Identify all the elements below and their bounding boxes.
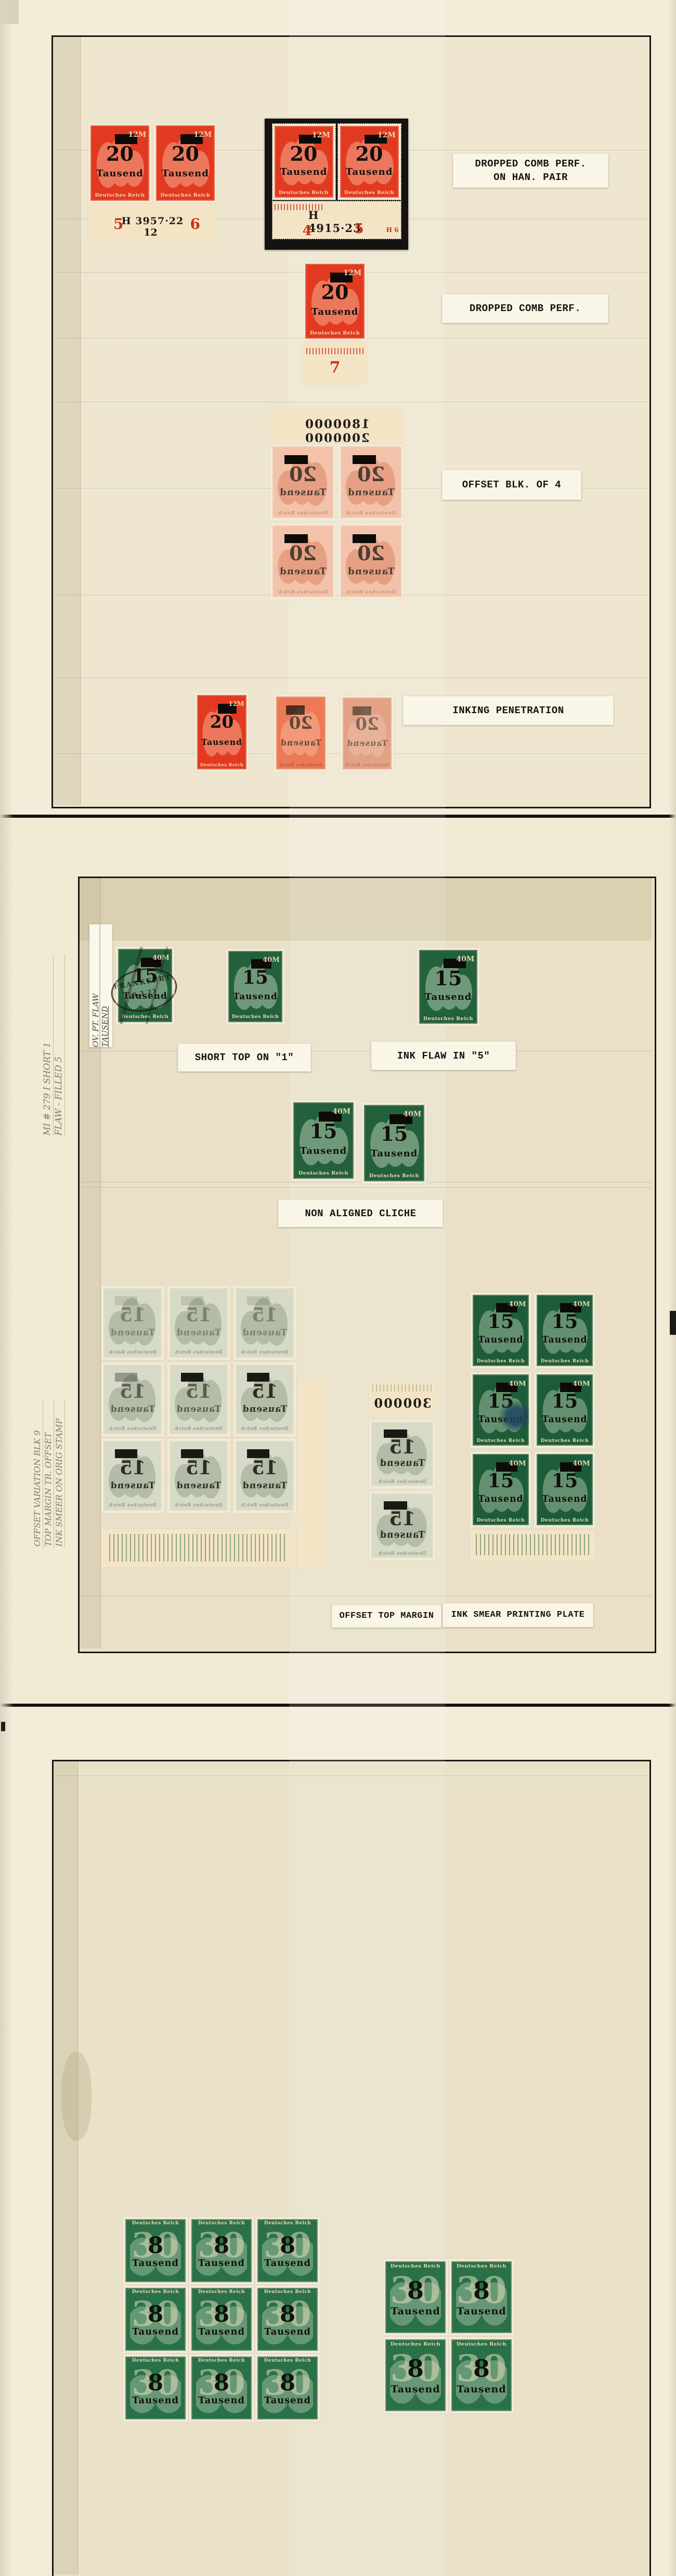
country-name: Deutsches Reich [473,1518,529,1523]
base-value: 40M [573,1300,590,1308]
block-of-9-8-tausend: Deutsches Reich 30 8 Tausend Deutsches R… [123,2217,320,2422]
surcharge-value: 15 [473,1472,529,1490]
surcharge-value: 15 [537,1472,593,1490]
note-line: OV. PT. FLAW [91,924,100,1047]
surcharge-value: 15 [170,1459,228,1477]
stamp-8-tausend: Deutsches Reich 30 8 Tausend [255,2286,320,2353]
surcharge-unit: Tausend [451,2307,512,2316]
sheet-position-right: 6 [190,215,200,233]
surcharge-unit: Tausend [170,1329,228,1337]
base-value: 40M [573,1459,590,1467]
stamp-print: Deutsches Reich 30 8 Tausend [125,2219,186,2282]
base-value: 40M [403,1110,421,1118]
stamp-print: Deutsches Reich 30 8 Tausend [125,2356,186,2419]
stamp-8-tausend: Deutsches Reich 30 8 Tausend [383,2337,448,2413]
stamp-15-tausend-offset: 15 Tausend Deutsches Reich [233,1286,296,1360]
surcharge-unit: Tausend [385,2385,446,2394]
surcharge-unit: Tausend [272,567,333,576]
stamp-album-scan: 12M 20 Tausend Deutsches Reich 12M 20 Ta… [0,0,676,2576]
stamp-8-tausend: Deutsches Reich 30 8 Tausend [123,2286,188,2353]
surcharge-unit: Tausend [371,1459,433,1468]
control-number: 12 [144,227,157,238]
country-name: Deutsches Reich [170,1503,228,1508]
mounted-pair-sheet-margin: H 4915·23 4 5 H 6 [272,201,401,239]
country-name: Deutsches Reich [343,763,392,767]
stamp-8-tausend: Deutsches Reich 30 8 Tausend [449,2337,514,2413]
surcharge-value: 20 [340,144,399,164]
stamp-print: 40M 15 Tausend Deutsches Reich [364,1105,424,1181]
surcharge-unit: Tausend [537,1336,593,1345]
stamp-15-tausend-offset: 15 Tausend Deutsches Reich [101,1439,164,1513]
stamp-print: 40M 15 Tausend Deutsches Reich [473,1454,529,1525]
surcharge-unit: Tausend [385,2307,446,2316]
surcharge-unit: Tausend [537,1415,593,1424]
surcharge-value: 20 [341,465,401,484]
surcharge-value: 8 [125,2234,186,2257]
label-text: NON ALIGNED CLICHE [305,1207,416,1220]
stamp-15-tausend: 40M 15 Tausend Deutsches Reich [471,1293,531,1368]
surcharge-unit: Tausend [236,1482,294,1490]
note-line: FLAW - FILLED 5 [54,955,65,1137]
stamp-15-tausend: 40M 15 Tausend Deutsches Reich [291,1100,356,1181]
surcharge-unit: Tausend [90,169,149,178]
stamp-print: 12M 20 Tausend Deutsches Reich [305,264,365,339]
label-inking-penetration: INKING PENETRATION [403,696,614,725]
stamp-20-tausend: 12M 20 Tausend Deutsches Reich [154,123,217,203]
surcharge-unit: Tausend [340,168,399,177]
surcharge-unit: Tausend [170,1405,228,1414]
label-text: ON HAN. PAIR [493,171,568,184]
edge-mark [1,1722,5,1731]
stamp-15-tausend-ink-flaw: 40M 15 Tausend Deutsches Reich [417,948,479,1026]
surcharge-unit: Tausend [305,307,365,317]
stamp-print: 40M 15 Tausend Deutsches Reich [537,1374,593,1446]
stamp-print: Deutsches Reich 30 8 Tausend [385,2339,446,2411]
block6-bottom-margin [471,1530,595,1560]
stamp-print: 15 Tausend Deutsches Reich [103,1364,162,1434]
surcharge-unit: Tausend [125,2396,186,2405]
country-name: Deutsches Reich [305,331,365,336]
label-non-aligned-cliche: NON ALIGNED CLICHE [278,1200,443,1227]
country-name: Deutsches Reich [371,1479,433,1484]
note-line: TOP MARGIN TR. OFFSET [43,1399,54,1548]
stamp-print: 40M 15 Tausend Deutsches Reich [473,1295,529,1366]
stamp-print: 15 Tausend Deutsches Reich [371,1493,433,1558]
country-name: Deutsches Reich [341,590,401,595]
base-value: 40M [263,956,280,964]
base-value: 12M [193,131,212,139]
han-number: H 3957·22 [122,215,184,227]
stamp-20-tausend: 12M 20 Tausend Deutsches Reich [272,124,335,200]
label-short-top: SHORT TOP ON "1" [178,1044,311,1072]
sheet-position-right: 5 [355,221,364,237]
offset-block-of-9: 15 Tausend Deutsches Reich 15 Tausend De… [101,1286,296,1513]
surcharge-value: 8 [385,2356,446,2380]
stamp-15-tausend: 40M 15 Tausend Deutsches Reich [535,1372,595,1448]
stamp-15-tausend-offset: 15 Tausend Deutsches Reich [167,1362,230,1436]
han-pair-sheet-margin: 5 H 3957·22 6 12 [88,204,217,241]
surcharge-unit: Tausend [197,738,246,746]
country-name: Deutsches Reich [103,1503,162,1508]
surcharge-value: 15 [537,1392,593,1411]
surcharge-unit: Tausend [103,1329,162,1337]
surcharge-unit: Tausend [276,739,326,746]
country-name: Deutsches Reich [236,1350,294,1355]
surcharge-unit: Tausend [191,2327,252,2337]
stamp-8-tausend: Deutsches Reich 30 8 Tausend [255,2217,320,2284]
country-name: Deutsches Reich [236,1427,294,1432]
stamp-8-tausend: Deutsches Reich 30 8 Tausend [123,2217,188,2284]
surcharge-value: 15 [236,1306,294,1324]
surcharge-value: 20 [272,465,333,484]
sheet-counting-number-mirrored: 300000 [369,1396,435,1411]
corner-code: H 6 [386,226,399,234]
base-value: 12M [378,131,396,139]
stamp-15-tausend: 40M 15 Tausend Deutsches Reich [362,1103,426,1183]
stamp-print: 15 Tausend Deutsches Reich [170,1441,228,1511]
surcharge-unit: Tausend [257,2259,318,2268]
base-value: 12M [343,269,361,277]
stamp-print: 15 Tausend Deutsches Reich [236,1441,294,1511]
surcharge-value: 8 [385,2278,446,2302]
stamp-print: 15 Tausend Deutsches Reich [236,1364,294,1434]
stamp-8-tausend: Deutsches Reich 30 8 Tausend [123,2354,188,2422]
country-name: Deutsches Reich [340,190,399,196]
stamp-8-tausend: Deutsches Reich 30 8 Tausend [189,2286,254,2353]
stamp-20-tausend-offset: 20 Tausend Deutsches Reich [270,444,335,520]
surcharge-value: 8 [257,2303,318,2325]
surcharge-unit: Tausend [228,992,282,1001]
stamp-print: 20 Tausend Deutsches Reich [341,525,401,597]
stamp-print: 40M 15 Tausend Deutsches Reich [228,951,282,1022]
country-name: Deutsches Reich [90,193,149,198]
base-value: 40M [509,1380,526,1388]
stamp-print: 20 Tausend Deutsches Reich [272,446,333,518]
stamp-8-tausend: Deutsches Reich 30 8 Tausend [449,2259,514,2335]
label-offset-block: OFFSET BLK. OF 4 [442,470,581,500]
surcharge-value: 20 [343,716,392,733]
surcharge-value: 15 [473,1312,529,1331]
country-name: Deutsches Reich [341,511,401,516]
surcharge-unit: Tausend [170,1482,228,1490]
country-name: Deutsches Reich [103,1350,162,1355]
country-name: Deutsches Reich [228,1015,282,1020]
surcharge-unit: Tausend [343,739,392,747]
stamp-15-tausend-offset: 15 Tausend Deutsches Reich [233,1439,296,1513]
country-name: Deutsches Reich [419,1016,477,1022]
stamp-print: 40M 15 Tausend Deutsches Reich [537,1295,593,1366]
label-dropped-comb-perf-pair: DROPPED COMB PERF. ON HAN. PAIR [453,153,608,188]
sheet-position: 7 [330,358,341,377]
country-name: Deutsches Reich [537,1438,593,1443]
surcharge-unit: Tausend [103,1405,162,1414]
country-name: Deutsches Reich [170,1427,228,1432]
country-name: Deutsches Reich [170,1350,228,1355]
surcharge-value: 8 [191,2303,252,2325]
note-line: OFFSET VARIATION BLK 9 [32,1399,43,1548]
surcharge-unit: Tausend [257,2327,318,2337]
stamp-print: 40M 15 Tausend Deutsches Reich [473,1374,529,1446]
page1-hinge-strip [53,37,81,805]
stamp-20-tausend-offset: 20 Tausend Deutsches Reich [270,523,335,599]
offset-block-top-margin: 1800000 2000000 [270,407,404,442]
base-value: 12M [228,700,244,707]
base-value: 40M [332,1107,350,1116]
stamp-15-tausend-offset: 15 Tausend Deutsches Reich [233,1362,296,1436]
country-name: Deutsches Reich [156,193,215,198]
surcharge-unit: Tausend [341,567,401,576]
han-pair-20-tausend: 12M 20 Tausend Deutsches Reich 12M 20 Ta… [88,123,217,203]
label-text: INK FLAW IN "5" [397,1049,490,1063]
country-name: Deutsches Reich [236,1503,294,1508]
surcharge-unit: Tausend [341,488,401,497]
base-value: 40M [456,955,474,963]
surcharge-value: 15 [473,1392,529,1411]
surcharge-unit: Tausend [257,2396,318,2405]
country-name: Deutsches Reich [451,2264,512,2269]
base-value: 12M [312,131,330,139]
stamp-15-tausend-used: 40M 15 Tausend Deutsches Reich FRANKFURT… [116,947,174,1024]
label-text: DROPPED COMB PERF. [470,302,581,315]
binder-edge-left [0,0,14,2576]
surcharge-value: 20 [341,544,401,563]
stamp-8-tausend: Deutsches Reich 30 8 Tausend [255,2354,320,2422]
surcharge-unit: Tausend [419,993,477,1002]
note-line: MI # 279 I SHORT 1 [42,955,54,1137]
country-name: Deutsches Reich [385,2342,446,2347]
country-name: Deutsches Reich [385,2264,446,2269]
stamp-15-tausend: 40M 15 Tausend Deutsches Reich [471,1452,531,1527]
perforation-comb-marks [306,348,363,354]
surcharge-unit: Tausend [293,1147,354,1156]
page-edge-right [669,0,676,2576]
surcharge-value: 8 [451,2278,512,2302]
scanner-light-band [289,0,445,2576]
surcharge-unit: Tausend [451,2385,512,2394]
surcharge-unit: Tausend [103,1482,162,1490]
pencil-note-1: MI # 279 I SHORT 1 FLAW - FILLED 5 [42,955,65,1137]
stamp-print: Deutsches Reich 30 8 Tausend [191,2288,252,2351]
stamp-print: Deutsches Reich 30 8 Tausend [257,2356,318,2419]
stamp-print: 12M 20 Tausend Deutsches Reich [156,125,215,201]
country-name: Deutsches Reich [537,1359,593,1363]
label-text: SHORT TOP ON "1" [195,1051,294,1064]
country-name: Deutsches Reich [371,1551,433,1556]
stamp-15-tausend: 40M 15 Tausend Deutsches Reich [226,949,284,1024]
country-name: Deutsches Reich [473,1438,529,1443]
surcharge-value: 15 [103,1306,162,1324]
surcharge-value: 15 [236,1459,294,1477]
stamp-15-tausend-offset: 15 Tausend Deutsches Reich [369,1420,435,1488]
stamp-20-tausend: 12M 20 Tausend Deutsches Reich [338,124,401,200]
surcharge-unit: Tausend [473,1495,529,1504]
stamp-print: 40M 15 Tausend Deutsches Reich [537,1454,593,1525]
stamp-20-tausend: 12M 20 Tausend Deutsches Reich [88,123,151,203]
stamp-20-tausend-offset: 20 Tausend Deutsches Reich [339,444,404,520]
surcharge-value: 20 [275,144,333,164]
surcharge-unit: Tausend [371,1531,433,1540]
surcharge-value: 15 [364,1124,424,1144]
surcharge-value: 8 [191,2372,252,2394]
note-line: TAUSEND [100,924,110,1047]
page3-stain [61,2052,92,2141]
surcharge-unit: Tausend [473,1336,529,1345]
sheet-counting-numbers-mirrored: 1800000 2000000 [270,417,404,445]
stamp-20-tausend: 12M 20 Tausend Deutsches Reich [195,693,249,771]
block-of-4-8-tausend: Deutsches Reich 30 8 Tausend Deutsches R… [383,2259,514,2413]
stamp-print: 12M 20 Tausend Deutsches Reich [340,126,399,198]
label-text: OFFSET TOP MARGIN [340,1611,434,1622]
sheet-position-left: 4 [303,223,312,239]
block-of-6-ink-smear: 40M 15 Tausend Deutsches Reich 40M 15 Ta… [471,1293,595,1527]
stamp-20-tausend-offset: 20 Tausend Deutsches Reich [339,523,404,599]
block9-bottom-margin [101,1529,296,1567]
surcharge-value: 15 [170,1306,228,1324]
label-text: INKING PENETRATION [452,704,564,717]
country-name: Deutsches Reich [473,1359,529,1363]
stamp-print: 20 Tausend Deutsches Reich [343,698,392,769]
label-offset-top-margin: OFFSET TOP MARGIN [332,1605,441,1628]
stamp-print: 12M 20 Tausend Deutsches Reich [275,126,333,198]
label-text: DROPPED COMB PERF. [475,157,586,171]
stamp-print: Deutsches Reich 30 8 Tausend [191,2356,252,2419]
stamp-print: 15 Tausend Deutsches Reich [170,1364,228,1434]
country-name: Deutsches Reich [537,1518,593,1523]
label-ink-smear-plate: INK SMEAR PRINTING PLATE [443,1603,593,1627]
edge-mark [670,1311,676,1335]
stamp-15-tausend-offset: 15 Tausend Deutsches Reich [167,1286,230,1360]
pencil-note-2: OFFSET VARIATION BLK 9 TOP MARGIN TR. OF… [32,1399,65,1548]
stamp-8-tausend: Deutsches Reich 30 8 Tausend [383,2259,448,2335]
country-name: Deutsches Reich [272,590,333,595]
offset-strip-pair: 15 Tausend Deutsches Reich 15 Tausend De… [369,1420,435,1560]
offset-block-of-4: 20 Tausend Deutsches Reich 20 Tausend De… [270,444,404,599]
surcharge-unit: Tausend [473,1415,529,1424]
country-name: Deutsches Reich [272,511,333,516]
surcharge-value: 8 [451,2356,512,2380]
surcharge-unit: Tausend [191,2259,252,2268]
label-text: INK SMEAR PRINTING PLATE [451,1609,585,1621]
stamp-print: Deutsches Reich 30 8 Tausend [257,2288,318,2351]
surcharge-value: 20 [305,282,365,302]
label-ink-flaw: INK FLAW IN "5" [371,1041,516,1070]
stamp-print: 20 Tausend Deutsches Reich [341,446,401,518]
stamp-print: 15 Tausend Deutsches Reich [103,1288,162,1358]
stamp-print: 15 Tausend Deutsches Reich [103,1441,162,1511]
stamp-print: 20 Tausend Deutsches Reich [276,697,326,769]
surcharge-value: 15 [537,1312,593,1331]
surcharge-unit: Tausend [364,1149,424,1158]
non-aligned-cliche-pair: 40M 15 Tausend Deutsches Reich 40M 15 Ta… [291,1100,426,1183]
stamp-print: Deutsches Reich 30 8 Tausend [385,2261,446,2333]
surcharge-value: 15 [103,1382,162,1401]
base-value: 40M [509,1459,526,1467]
stamp-15-tausend-offset: 15 Tausend Deutsches Reich [369,1491,435,1560]
single-sheet-margin: 7 [303,342,367,384]
surcharge-value: 15 [293,1122,354,1141]
stamp-20-tausend-ink-penetration: 20 Tausend Deutsches Reich [274,694,328,771]
surcharge-unit: Tausend [156,169,215,178]
stamp-20-tausend: 12M 20 Tausend Deutsches Reich [303,262,367,341]
label-text: OFFSET BLK. OF 4 [462,478,561,492]
stamp-15-tausend-offset: 15 Tausend Deutsches Reich [101,1362,164,1436]
surcharge-value: 15 [371,1510,433,1528]
stamp-15-tausend: 40M 15 Tausend Deutsches Reich [535,1452,595,1527]
surcharge-unit: Tausend [275,168,333,177]
stamp-8-tausend: Deutsches Reich 30 8 Tausend [189,2217,254,2284]
country-name: Deutsches Reich [276,763,326,767]
surcharge-unit: Tausend [537,1495,593,1504]
surcharge-value: 20 [276,715,326,732]
country-name: Deutsches Reich [364,1174,424,1179]
block9-right-margin [298,1380,324,1567]
surcharge-unit: Tausend [125,2327,186,2337]
surcharge-unit: Tausend [125,2259,186,2268]
stamp-15-tausend: 40M 15 Tausend Deutsches Reich [471,1372,531,1448]
stamp-print: 20 Tausend Deutsches Reich [272,525,333,597]
surcharge-value: 15 [103,1459,162,1477]
mounted-pair-20-tausend: 12M 20 Tausend Deutsches Reich 12M 20 Ta… [272,124,401,200]
surcharge-value: 15 [371,1438,433,1457]
handwritten-note: OV. PT. FLAW TAUSEND [91,924,111,1047]
base-value: 12M [128,131,146,139]
stamp-print: 12M 20 Tausend Deutsches Reich [197,695,246,769]
base-value: 40M [573,1380,590,1388]
country-name: Deutsches Reich [197,763,246,767]
stamp-print: Deutsches Reich 30 8 Tausend [191,2219,252,2282]
stamp-print: Deutsches Reich 30 8 Tausend [451,2261,512,2333]
country-name: Deutsches Reich [275,190,333,196]
surcharge-unit: Tausend [236,1405,294,1414]
stamp-print: 15 Tausend Deutsches Reich [170,1288,228,1358]
stamp-print: Deutsches Reich 30 8 Tausend [451,2339,512,2411]
country-name: Deutsches Reich [103,1427,162,1432]
surcharge-value: 20 [272,544,333,563]
stamp-15-tausend-offset: 15 Tausend Deutsches Reich [101,1286,164,1360]
offset-strip-top-margin: 300000 [369,1381,435,1416]
surcharge-value: 15 [236,1382,294,1401]
note-line: INK SMEER ON ORIG STAMP [54,1399,65,1548]
page3-hinge-strip [54,1761,78,2574]
stamp-8-tausend: Deutsches Reich 30 8 Tausend [189,2354,254,2422]
base-value: 40M [509,1300,526,1308]
surcharge-value: 15 [419,969,477,988]
country-name: Deutsches Reich [451,2342,512,2347]
label-dropped-comb-perf: DROPPED COMB PERF. [442,294,608,323]
stamp-print: 40M 15 Tausend Deutsches Reich [419,950,477,1024]
surcharge-value: 8 [125,2372,186,2394]
surcharge-value: 8 [257,2372,318,2394]
surcharge-value: 15 [170,1382,228,1401]
surcharge-value: 8 [257,2234,318,2257]
surcharge-value: 8 [191,2234,252,2257]
stamp-15-tausend-offset: 15 Tausend Deutsches Reich [167,1439,230,1513]
stamp-print: 15 Tausend Deutsches Reich [371,1422,433,1486]
margin-guide-stripes [372,1384,432,1392]
surcharge-value: 20 [90,144,149,164]
stamp-print: Deutsches Reich 30 8 Tausend [257,2219,318,2282]
stamp-print: 12M 20 Tausend Deutsches Reich [90,125,149,201]
stamp-print: Deutsches Reich 30 8 Tausend [125,2288,186,2351]
handwritten-note-strip: OV. PT. FLAW TAUSEND [89,924,112,1047]
stamp-15-tausend: 40M 15 Tausend Deutsches Reich [535,1293,595,1368]
surcharge-value: 20 [197,714,246,731]
surcharge-unit: Tausend [236,1329,294,1337]
surcharge-value: 15 [228,969,282,987]
surcharge-value: 20 [156,144,215,164]
surcharge-value: 8 [125,2303,186,2325]
surcharge-unit: Tausend [191,2396,252,2405]
